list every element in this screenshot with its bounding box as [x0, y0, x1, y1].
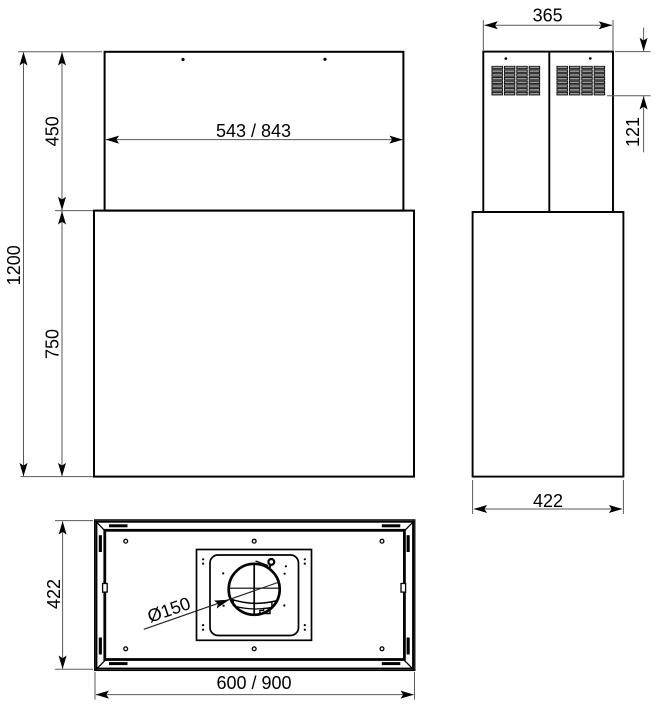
svg-text:422: 422 — [533, 491, 563, 511]
svg-text:365: 365 — [533, 5, 563, 25]
svg-text:422: 422 — [44, 579, 64, 609]
svg-text:1200: 1200 — [4, 245, 24, 285]
svg-text:750: 750 — [42, 329, 62, 359]
svg-text:Ø150: Ø150 — [145, 593, 193, 626]
svg-text:121: 121 — [623, 117, 643, 147]
svg-text:600 / 900: 600 / 900 — [216, 673, 291, 693]
svg-text:543 / 843: 543 / 843 — [216, 121, 291, 141]
svg-text:450: 450 — [42, 116, 62, 146]
